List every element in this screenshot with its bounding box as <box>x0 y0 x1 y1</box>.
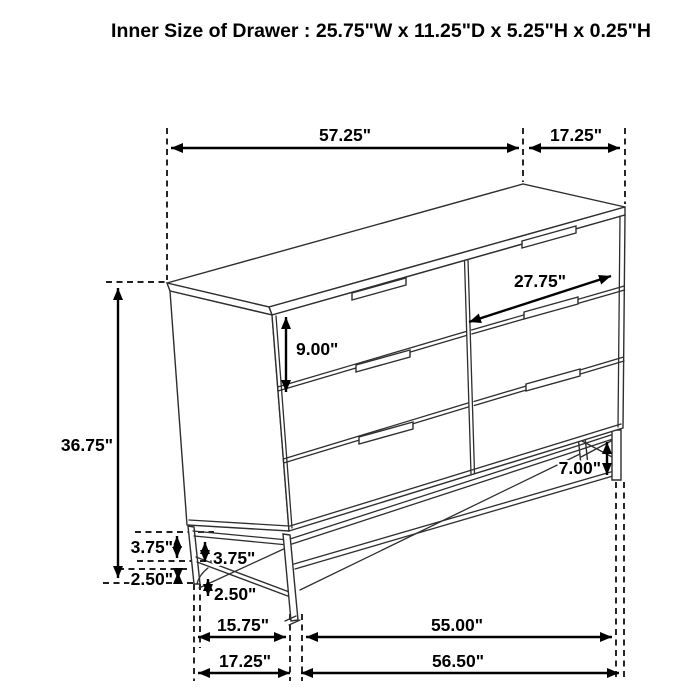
dim-label-base-depth: 15.75" <box>217 615 269 635</box>
dim-overall-height: 36.75" <box>61 288 118 578</box>
dim-label-left-upper-inner: 3.75" <box>213 548 255 568</box>
dim-left-upper-outer: 3.75" <box>131 536 177 558</box>
dim-base-width: 55.00" <box>306 615 612 637</box>
leg-front-left <box>283 534 298 621</box>
dim-label-top-depth: 17.25" <box>550 125 602 145</box>
leg-back-left <box>188 526 200 584</box>
dim-label-drawer-front-height: 9.00" <box>296 339 338 359</box>
leg-front-right <box>612 430 621 480</box>
dim-left-lower-inner: 2.50" <box>208 579 256 604</box>
dim-label-left-lower-outer: 2.50" <box>131 569 173 589</box>
dim-base-depth: 15.75" <box>198 615 286 637</box>
dim-top-width: 57.25" <box>171 125 519 148</box>
dim-label-left-upper-outer: 3.75" <box>131 537 173 557</box>
left-side-panel <box>170 291 289 531</box>
dim-floor-width: 56.50" <box>301 651 619 673</box>
dimension-diagram: Inner Size of Drawer : 25.75"W x 11.25"D… <box>0 0 700 700</box>
dim-left-lower-outer: 2.50" <box>131 569 178 589</box>
dim-left-upper-inner: 3.75" <box>205 542 255 568</box>
diagram-svg: Inner Size of Drawer : 25.75"W x 11.25"D… <box>0 0 700 700</box>
dim-label-floor-width: 56.50" <box>432 651 484 671</box>
dim-label-top-width: 57.25" <box>319 125 371 145</box>
dim-label-floor-depth: 17.25" <box>219 651 271 671</box>
dim-floor-depth: 17.25" <box>198 651 290 673</box>
dim-label-left-lower-inner: 2.50" <box>214 584 256 604</box>
page-title: Inner Size of Drawer : 25.75"W x 11.25"D… <box>111 20 651 42</box>
dim-label-overall-height: 36.75" <box>61 435 113 455</box>
dim-label-base-width: 55.00" <box>431 615 483 635</box>
dim-label-leg-height-right: 7.00" <box>559 458 601 478</box>
dim-top-depth: 17.25" <box>529 125 620 148</box>
dim-label-drawer-width: 27.75" <box>514 271 566 291</box>
